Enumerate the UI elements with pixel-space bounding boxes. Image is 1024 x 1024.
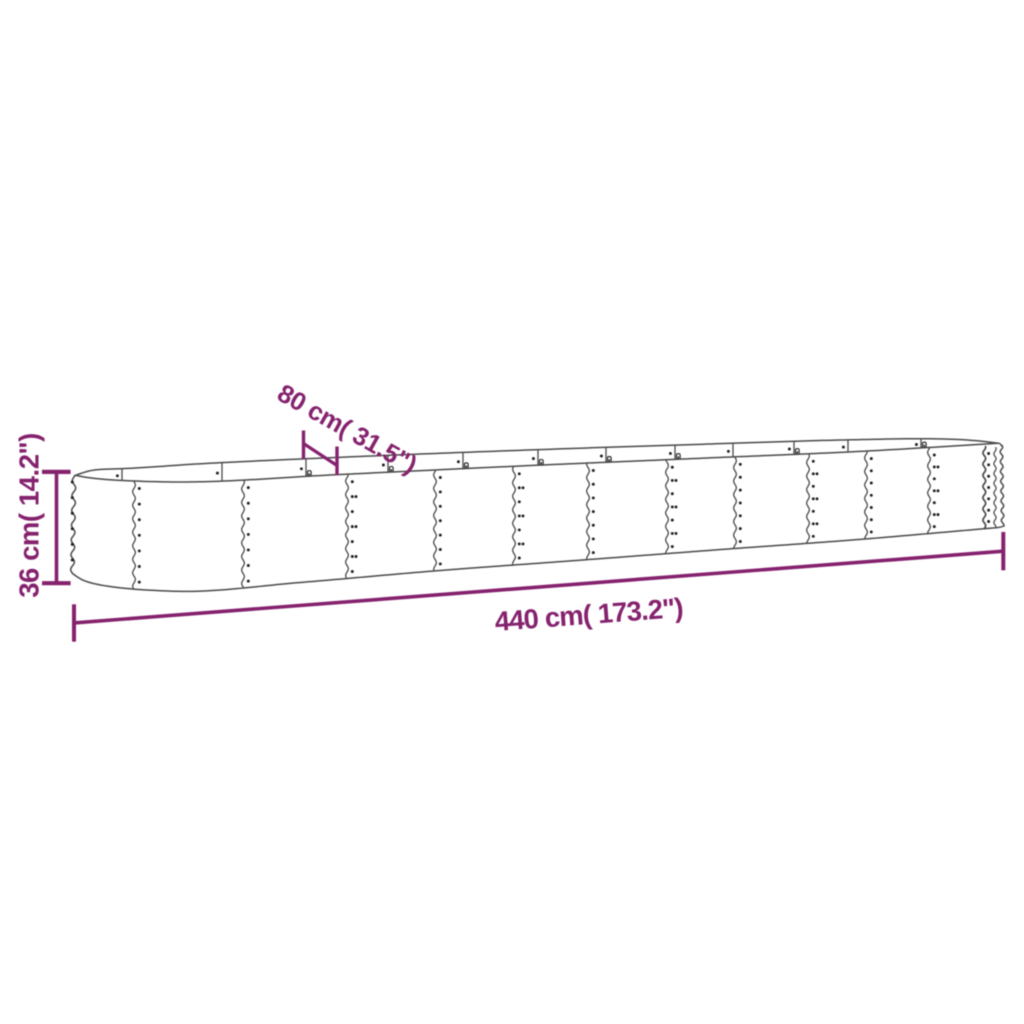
svg-text:36 cm( 14.2"): 36 cm( 14.2") bbox=[14, 433, 45, 598]
